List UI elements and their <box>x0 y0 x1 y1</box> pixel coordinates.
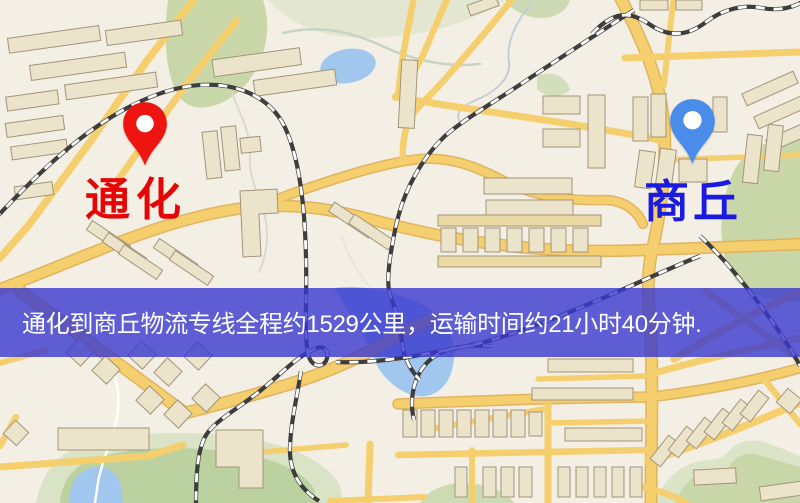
origin-city-label: 通化 <box>85 178 187 223</box>
map-view: 通化 商丘 通化到商丘物流专线全程约1529公里，运输时间约21小时40分钟. <box>0 0 800 503</box>
destination-marker[interactable] <box>669 96 716 168</box>
destination-pin-icon <box>669 96 716 168</box>
destination-city-label: 商丘 <box>644 180 742 225</box>
origin-pin-icon <box>122 99 168 170</box>
map-image[interactable] <box>0 0 800 503</box>
route-info-text: 通化到商丘物流专线全程约1529公里，运输时间约21小时40分钟. <box>22 304 702 339</box>
origin-marker[interactable] <box>122 99 168 170</box>
route-info-banner: 通化到商丘物流专线全程约1529公里，运输时间约21小时40分钟. <box>0 288 800 357</box>
